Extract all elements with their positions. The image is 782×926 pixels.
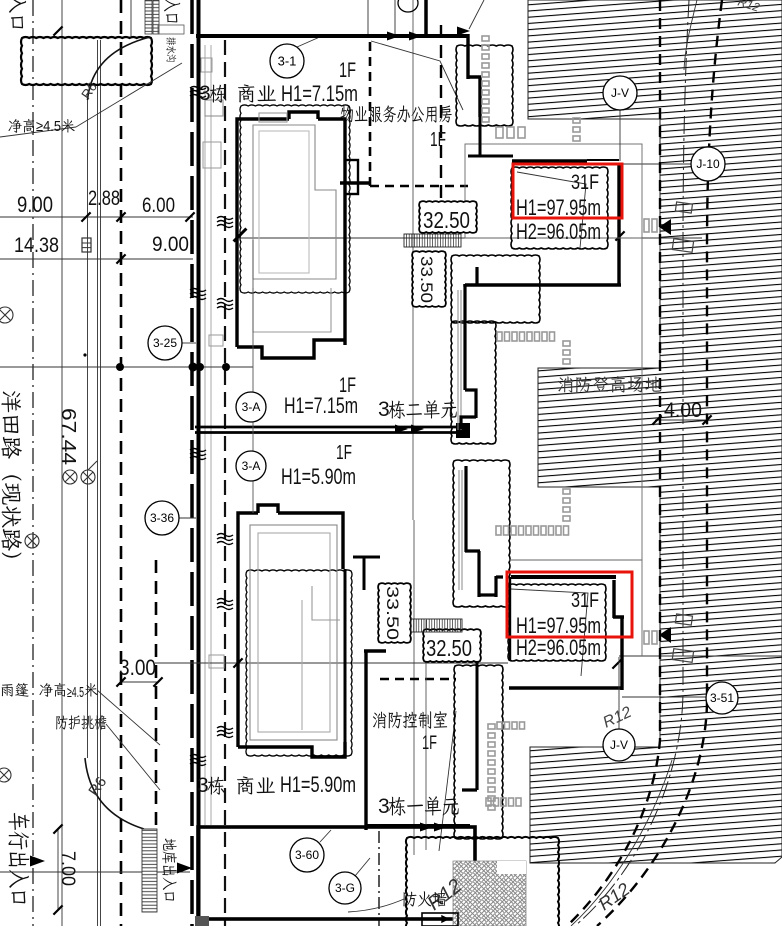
svg-text:3-36: 3-36: [150, 511, 174, 525]
svg-text:R12: R12: [601, 704, 635, 732]
svg-text:4.00: 4.00: [664, 399, 702, 422]
svg-text:33.50: 33.50: [417, 256, 436, 303]
svg-text:14.38: 14.38: [14, 234, 59, 257]
svg-text:R12: R12: [595, 879, 634, 914]
svg-text:1F: 1F: [339, 59, 356, 82]
svg-text:2.88: 2.88: [88, 187, 120, 210]
svg-text:3: 3: [378, 795, 390, 818]
svg-text:3-A: 3-A: [242, 459, 261, 473]
svg-text:9.00: 9.00: [152, 233, 189, 256]
svg-text:H1=97.95m: H1=97.95m: [516, 195, 601, 220]
svg-text:3-A: 3-A: [242, 400, 261, 414]
svg-text:31F: 31F: [571, 171, 599, 194]
svg-text:3: 3: [378, 398, 390, 421]
svg-text:≥4.5: ≥4.5: [67, 684, 84, 701]
svg-text:3-G: 3-G: [335, 881, 355, 895]
svg-text:H1=5.90m: H1=5.90m: [280, 772, 356, 797]
svg-text:3: 3: [197, 774, 209, 797]
svg-text:H1=7.15m: H1=7.15m: [284, 393, 358, 418]
svg-text:J-10: J-10: [696, 157, 720, 171]
svg-text:≥4.5: ≥4.5: [36, 118, 61, 135]
svg-text:3-51: 3-51: [710, 691, 734, 705]
svg-text:32.50: 32.50: [423, 207, 470, 233]
svg-text:3: 3: [199, 82, 211, 105]
svg-text:1F: 1F: [430, 129, 446, 151]
svg-text:H1=5.90m: H1=5.90m: [281, 464, 356, 489]
svg-text:H2=96.05m: H2=96.05m: [516, 219, 601, 244]
svg-text:32.50: 32.50: [426, 635, 472, 661]
svg-text:J-V: J-V: [611, 86, 629, 100]
svg-text:3-1: 3-1: [278, 54, 297, 69]
svg-text:3-25: 3-25: [153, 336, 177, 350]
svg-text:9.00: 9.00: [17, 192, 53, 217]
svg-text:7.00: 7.00: [57, 851, 78, 886]
svg-text:J-V: J-V: [610, 738, 628, 752]
svg-text:3-60: 3-60: [295, 848, 319, 862]
svg-text:6.00: 6.00: [142, 194, 175, 217]
svg-text:1F: 1F: [336, 442, 352, 464]
svg-text:H2=96.05m: H2=96.05m: [516, 635, 601, 660]
svg-text:R6: R6: [78, 79, 100, 101]
svg-text:3.00: 3.00: [119, 655, 156, 680]
svg-text:31F: 31F: [571, 589, 599, 612]
svg-text:33.50: 33.50: [383, 586, 402, 640]
svg-text:H1=7.15m: H1=7.15m: [281, 81, 358, 106]
svg-text:67.44: 67.44: [57, 408, 79, 465]
svg-text:1F: 1F: [422, 733, 437, 754]
